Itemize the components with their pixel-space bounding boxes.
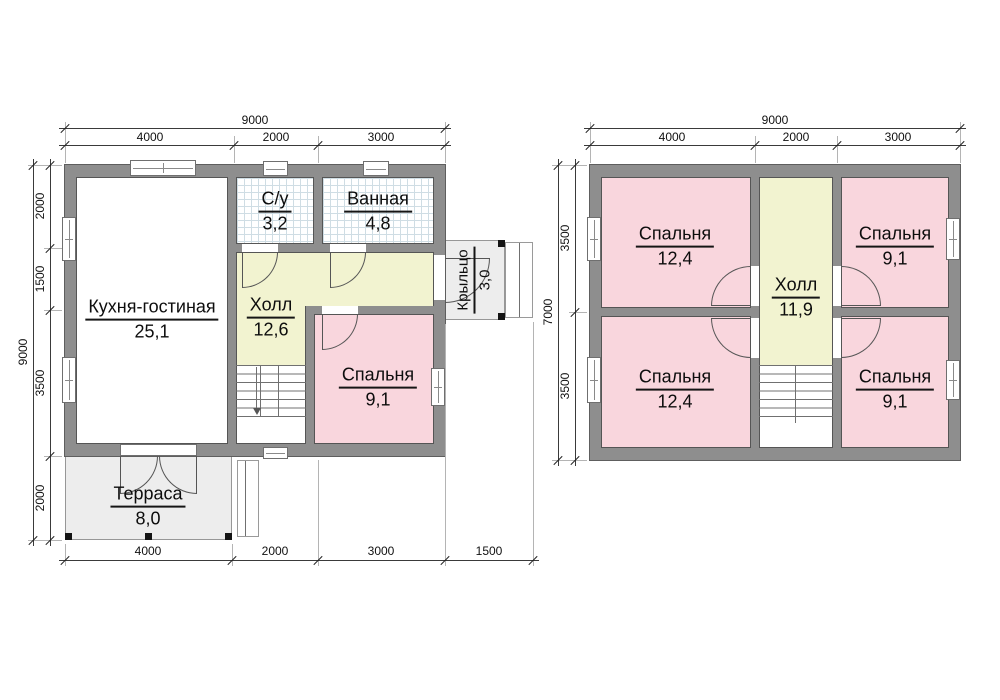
dim-line-top-total-2f [584, 128, 966, 129]
porch-step-edge [519, 243, 520, 317]
room-label-bath: Ванная 4,8 [344, 188, 412, 237]
door-opening-bath [330, 244, 366, 252]
floor-plan-drawing: Кухня-гостиная 25,1 С/у 3,2 Ванная 4,8 Х… [0, 0, 1000, 700]
dim-label: 9000 [762, 113, 789, 127]
door-opening-wc [242, 244, 278, 252]
stair-arrow-stem [256, 367, 257, 409]
window-mullion [434, 387, 442, 388]
room-name: Холл [247, 294, 295, 319]
room-name: Ванная [344, 188, 412, 213]
window-mullion [366, 169, 386, 170]
window-mullion [65, 380, 73, 381]
room-area: 12,4 [636, 391, 714, 414]
dim-label: 9000 [16, 339, 30, 366]
window-bedroom-tr-right [946, 218, 960, 260]
exterior-wall-left-1f [65, 165, 76, 456]
room-area: 12,4 [636, 248, 714, 271]
room-area: 3,2 [259, 213, 292, 236]
dim-line-top-seg-2f [584, 145, 966, 146]
extension-line [533, 322, 534, 566]
dim-label: 2000 [33, 485, 47, 512]
room-name: Спальня [856, 223, 934, 248]
porch-post [498, 240, 505, 247]
window-mullion [949, 239, 957, 240]
stair-divider [795, 365, 796, 423]
exterior-wall-left-2f [590, 165, 601, 460]
dim-label: 7000 [541, 299, 555, 326]
room-name: Спальня [636, 223, 714, 248]
dim-label: 4000 [135, 544, 162, 558]
side-steps [237, 460, 259, 537]
window-mullion [65, 239, 73, 240]
window-mullion [590, 380, 598, 381]
extension-line [232, 544, 233, 566]
window-kitchen-left-upper [62, 217, 76, 261]
dim-label: 3500 [33, 370, 47, 397]
dim-label: 3000 [368, 130, 395, 144]
room-label-wc: С/у 3,2 [259, 188, 292, 237]
window-wc-top [263, 161, 288, 176]
window-mullion [949, 380, 957, 381]
window-mullion [266, 169, 285, 170]
extension-line [755, 136, 756, 163]
interior-wall-bedroom-left [306, 314, 314, 444]
dim-label: 3500 [558, 373, 572, 400]
room-label-bedroom-tl: Спальня 12,4 [636, 223, 714, 272]
dim-label: 3000 [885, 130, 912, 144]
extension-line [569, 312, 587, 313]
terrace-door-frame [120, 444, 197, 456]
room-label-bedroom-bl: Спальня 12,4 [636, 366, 714, 415]
dim-label: 1500 [476, 544, 503, 558]
room-label-bedroom-br: Спальня 9,1 [856, 366, 934, 415]
window-mullion [590, 239, 598, 240]
room-area: 4,8 [344, 213, 412, 236]
stairs-1f [236, 365, 306, 417]
stairs-2f [759, 365, 833, 423]
room-name: Крыльцо [454, 246, 476, 313]
window-kitchen-top [130, 160, 196, 176]
extension-line [44, 456, 62, 457]
dim-label: 2000 [263, 130, 290, 144]
door-opening-entrance [434, 255, 445, 300]
stair-divider [278, 365, 279, 417]
dim-label: 3000 [368, 544, 395, 558]
extension-line [44, 248, 62, 249]
dim-label: 3500 [558, 225, 572, 252]
exterior-wall-right-1f [434, 165, 445, 456]
room-label-hall-2f: Холл 11,9 [772, 274, 820, 323]
exterior-wall-right-2f [949, 165, 960, 460]
room-area: 11,9 [772, 299, 820, 322]
side-steps-edge [245, 461, 246, 536]
extension-line [234, 136, 235, 163]
dim-label: 4000 [659, 130, 686, 144]
room-area: 12,6 [247, 319, 295, 342]
dim-label: 1500 [33, 266, 47, 293]
dim-label: 4000 [137, 130, 164, 144]
stair-arrow-head [253, 408, 261, 415]
dim-label: 9000 [242, 113, 269, 127]
dim-line-top-total-1f [59, 128, 451, 129]
interior-wall-kitchen-hall [228, 177, 236, 444]
dim-line-left-seg-1f [50, 159, 51, 546]
extension-line [318, 460, 319, 566]
room-label-bedroom-1f: Спальня 9,1 [339, 364, 417, 413]
room-name: С/у [259, 188, 292, 213]
exterior-wall-top-2f [590, 165, 960, 177]
window-bedroom-tl-left [587, 217, 601, 261]
dim-label: 2000 [783, 130, 810, 144]
room-area: 9,1 [339, 389, 417, 412]
window-bedroom-br-right [946, 360, 960, 400]
interior-wall-hall-right [833, 177, 841, 448]
room-name: Кухня-гостиная [85, 296, 218, 321]
window-mullion [266, 453, 285, 454]
dim-line-left-total-2f [558, 159, 559, 466]
room-hall-2f [759, 177, 833, 365]
terrace-post [65, 533, 72, 540]
porch-post [498, 313, 505, 320]
room-area: 9,1 [856, 248, 934, 271]
room-label-kitchen: Кухня-гостиная 25,1 [85, 296, 218, 345]
interior-wall-mid-left [601, 308, 751, 316]
room-area: 3,0 [475, 246, 495, 313]
dim-line-bottom-1f [59, 560, 539, 561]
door-opening-bedroom-br [833, 318, 841, 358]
window-bedroom-1f-right [431, 368, 445, 406]
extension-line [65, 544, 66, 566]
extension-line [318, 136, 319, 163]
dim-line-top-seg-1f [59, 145, 451, 146]
dim-label: 2000 [33, 193, 47, 220]
exterior-wall-bottom-2f [590, 448, 960, 460]
window-mullion [163, 163, 164, 173]
room-label-bedroom-tr: Спальня 9,1 [856, 223, 934, 272]
dim-label: 2000 [262, 544, 289, 558]
door-opening-bedroom-1f [322, 306, 358, 314]
interior-wall-mid-right [841, 308, 949, 316]
window-kitchen-left-lower [62, 357, 76, 403]
extension-line [445, 324, 446, 566]
room-name: Спальня [856, 366, 934, 391]
room-area: 25,1 [85, 321, 218, 344]
room-label-porch: Крыльцо 3,0 [454, 246, 495, 313]
window-bath-top [363, 161, 389, 176]
room-name: Холл [772, 274, 820, 299]
interior-wall-hall-left [751, 177, 759, 448]
door-opening-bedroom-tr [833, 266, 841, 306]
room-label-terrace: Терраса 8,0 [110, 483, 185, 532]
room-area: 8,0 [110, 508, 185, 531]
window-bottom-small [263, 447, 288, 459]
terrace-post [145, 533, 152, 540]
door-opening-bedroom-bl [751, 318, 759, 358]
terrace-post [225, 533, 232, 540]
room-area: 9,1 [856, 391, 934, 414]
window-bedroom-bl-left [587, 357, 601, 403]
room-name: Спальня [636, 366, 714, 391]
interior-wall-wc-bath [314, 177, 322, 252]
room-name: Терраса [110, 483, 185, 508]
extension-line [44, 310, 62, 311]
door-opening-bedroom-tl [751, 266, 759, 306]
extension-line [837, 136, 838, 163]
room-name: Спальня [339, 364, 417, 389]
room-label-hall-1f: Холл 12,6 [247, 294, 295, 343]
